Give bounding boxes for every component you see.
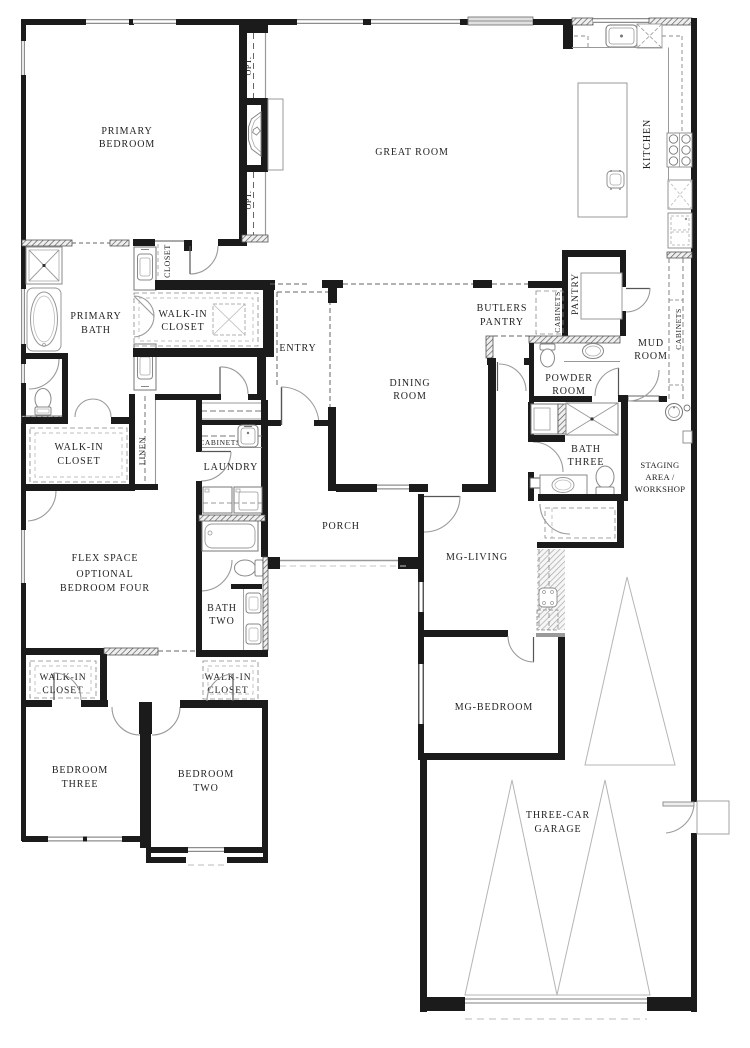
svg-text:MG-LIVING: MG-LIVING [446, 552, 508, 563]
svg-text:MG-BEDROOM: MG-BEDROOM [455, 702, 533, 713]
svg-text:CABINETS: CABINETS [674, 308, 683, 349]
svg-text:PRIMARY: PRIMARY [101, 126, 152, 137]
svg-text:BEDROOM: BEDROOM [99, 139, 155, 150]
svg-text:BATH: BATH [571, 444, 601, 455]
svg-text:WALK-IN: WALK-IN [158, 309, 207, 320]
svg-text:ROOM: ROOM [634, 351, 668, 362]
svg-text:BEDROOM FOUR: BEDROOM FOUR [60, 583, 150, 594]
svg-text:BATH: BATH [81, 325, 111, 336]
svg-text:THREE-CAR: THREE-CAR [526, 810, 590, 821]
svg-text:CLOSET: CLOSET [163, 244, 172, 278]
svg-text:OPTIONAL: OPTIONAL [76, 569, 133, 580]
svg-text:PANTRY: PANTRY [571, 273, 581, 315]
svg-text:AREA /: AREA / [645, 472, 675, 482]
svg-text:ROOM: ROOM [552, 386, 586, 397]
svg-text:THREE: THREE [62, 779, 99, 790]
svg-text:PORCH: PORCH [322, 521, 360, 532]
svg-text:WORKSHOP: WORKSHOP [635, 484, 686, 494]
svg-text:TWO: TWO [209, 616, 234, 627]
svg-text:FLEX SPACE: FLEX SPACE [72, 553, 139, 564]
svg-text:CABINETS: CABINETS [199, 438, 240, 447]
svg-text:KITCHEN: KITCHEN [642, 119, 653, 169]
svg-text:MUD: MUD [638, 338, 664, 349]
svg-text:THREE: THREE [568, 457, 605, 468]
svg-text:LINEN: LINEN [137, 437, 147, 466]
svg-text:PANTRY: PANTRY [480, 317, 524, 328]
svg-text:STAGING: STAGING [640, 460, 679, 470]
svg-text:BEDROOM: BEDROOM [178, 769, 234, 780]
svg-text:OPT.: OPT. [244, 191, 253, 210]
svg-text:ENTRY: ENTRY [279, 343, 316, 354]
svg-text:TWO: TWO [193, 783, 218, 794]
svg-text:GARAGE: GARAGE [534, 824, 581, 835]
svg-text:BATH: BATH [207, 603, 237, 614]
svg-text:BEDROOM: BEDROOM [52, 765, 108, 776]
svg-text:CABINETS: CABINETS [553, 291, 562, 332]
svg-text:POWDER: POWDER [545, 373, 593, 384]
svg-text:LAUNDRY: LAUNDRY [204, 462, 259, 473]
svg-text:DINING: DINING [390, 378, 431, 389]
svg-text:ROOM: ROOM [393, 391, 427, 402]
svg-text:PRIMARY: PRIMARY [70, 311, 121, 322]
svg-text:CLOSET: CLOSET [207, 686, 248, 696]
svg-text:CLOSET: CLOSET [161, 322, 204, 333]
svg-text:CLOSET: CLOSET [57, 456, 100, 467]
svg-text:WALK-IN: WALK-IN [54, 442, 103, 453]
svg-text:GREAT ROOM: GREAT ROOM [375, 147, 449, 158]
svg-text:OPT.: OPT. [244, 57, 253, 76]
svg-text:BUTLERS: BUTLERS [477, 303, 528, 314]
